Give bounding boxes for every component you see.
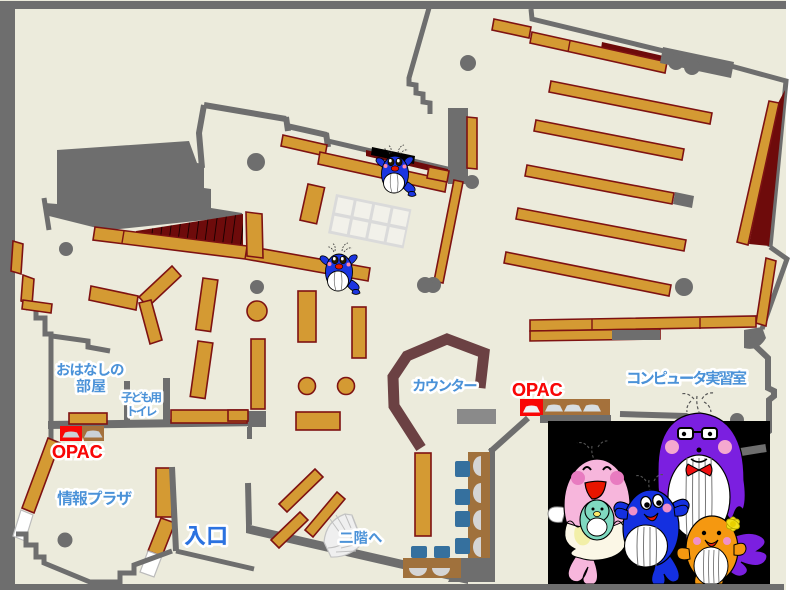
svg-text:OPAC: OPAC bbox=[512, 380, 563, 400]
svg-text:OPAC: OPAC bbox=[52, 442, 103, 462]
